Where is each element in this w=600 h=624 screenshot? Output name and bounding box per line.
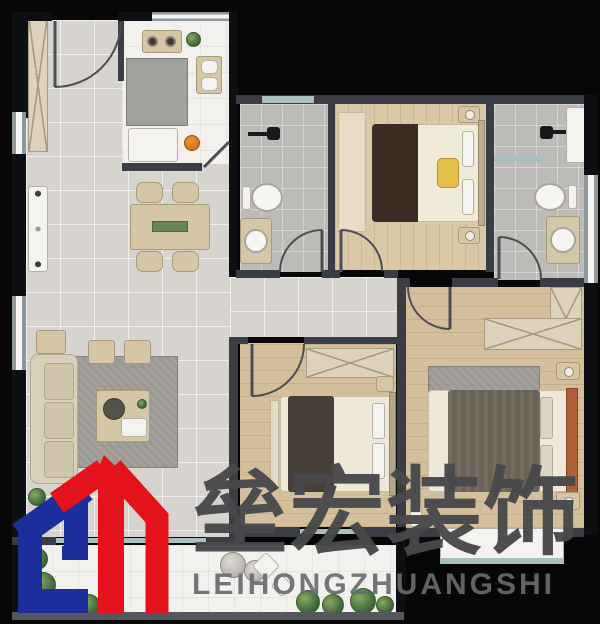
logo-red-roof bbox=[57, 470, 104, 503]
floorplan-image: 垒宏装饰 LEIHONGZHUANGSHI bbox=[0, 0, 600, 624]
watermark-brand-en: LEIHONGZHUANGSHI bbox=[192, 568, 555, 602]
watermark-brand-cn: 垒宏装饰 bbox=[192, 462, 580, 566]
